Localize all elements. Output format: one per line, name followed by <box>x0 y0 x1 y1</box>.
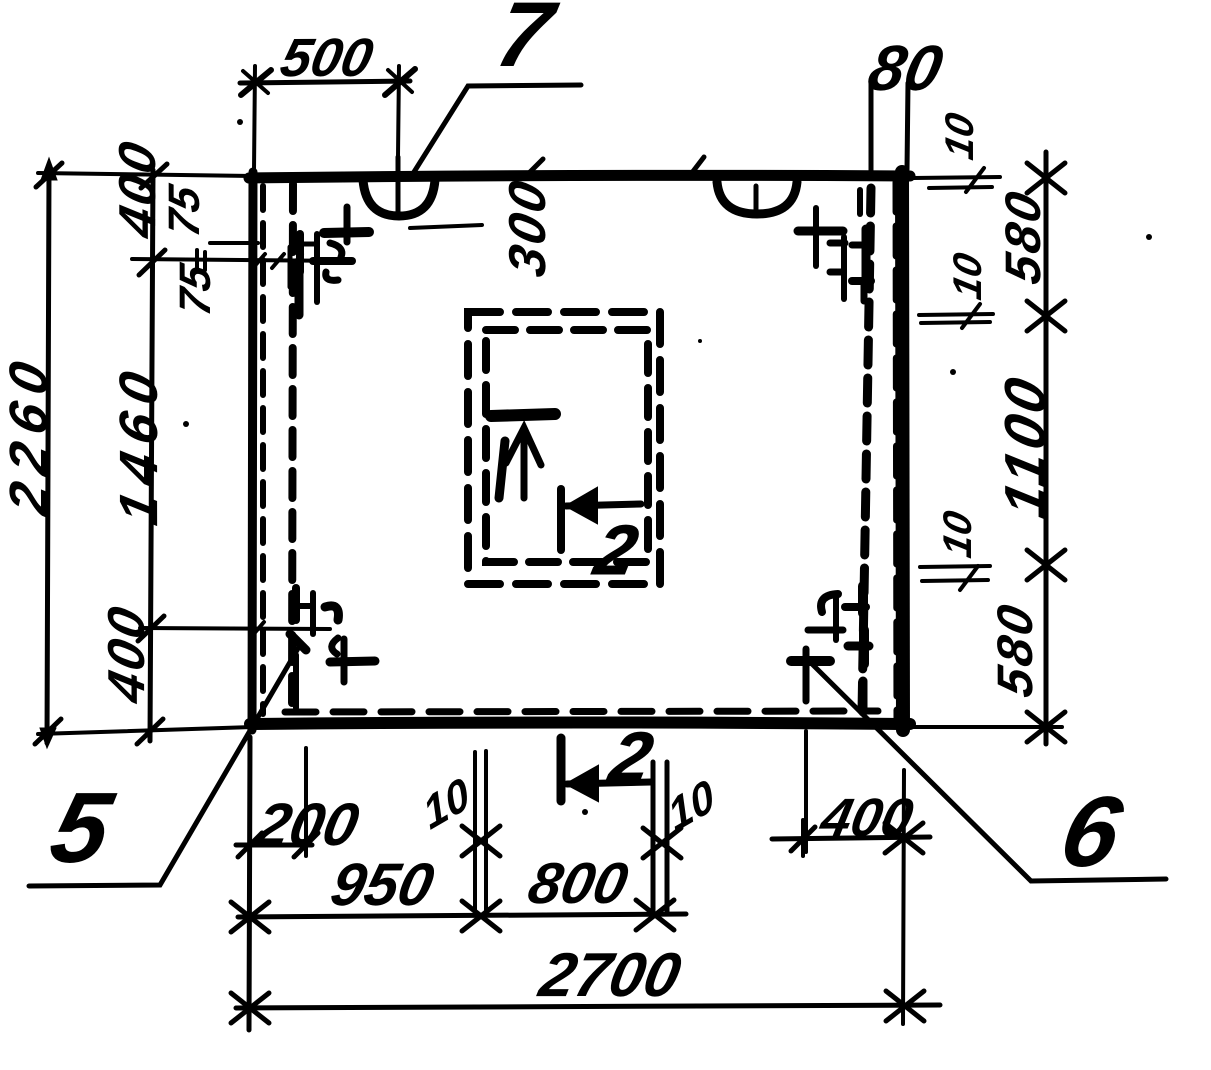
svg-text:2700: 2700 <box>533 941 687 1010</box>
svg-text:400: 400 <box>109 134 167 243</box>
svg-text:800: 800 <box>523 851 634 916</box>
svg-text:10: 10 <box>946 249 990 303</box>
svg-text:580: 580 <box>995 184 1051 288</box>
svg-text:400: 400 <box>814 788 918 848</box>
svg-text:2260: 2260 <box>0 347 59 521</box>
svg-text:500: 500 <box>275 28 378 88</box>
svg-text:200: 200 <box>249 791 364 858</box>
svg-text:950: 950 <box>325 851 439 918</box>
svg-text:1460: 1460 <box>109 357 169 530</box>
svg-text:80: 80 <box>862 32 948 104</box>
svg-text:10: 10 <box>936 507 980 561</box>
svg-text:580: 580 <box>987 597 1043 701</box>
svg-text:1100: 1100 <box>993 369 1058 523</box>
svg-text:300: 300 <box>499 173 557 281</box>
svg-text:400: 400 <box>98 599 156 708</box>
svg-text:10: 10 <box>938 109 982 163</box>
